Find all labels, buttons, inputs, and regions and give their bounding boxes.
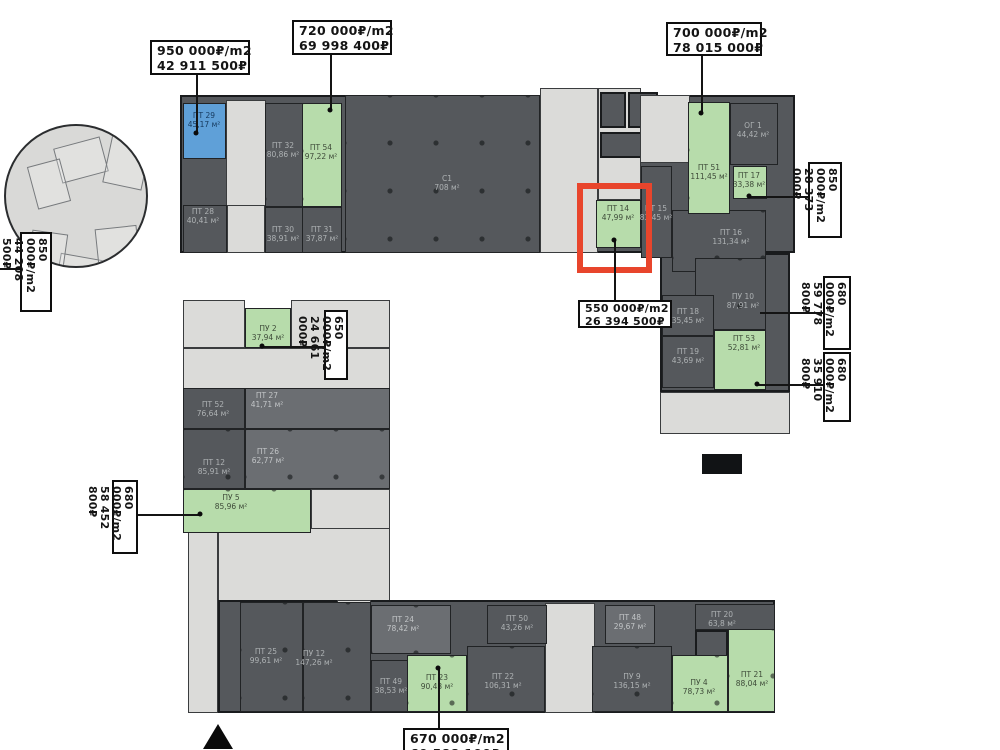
price-total: 24 661 000₽ [296,316,320,374]
floor-unit [371,605,451,654]
callout-connector [196,75,198,133]
price-total: 59 778 800₽ [799,282,823,344]
price-callout: 680 000₽/m235 910 800₽ [823,352,851,422]
floor-unit [605,605,655,644]
price-callout: 700 000₽/m278 015 000₽ [666,22,762,56]
floor-unit [240,602,303,712]
floor-unit [592,646,672,712]
building-structure [218,528,390,602]
floor-unit[interactable] [183,103,226,159]
price-per-m2: 850 000₽/m2 [814,168,838,232]
price-total: 35 910 800₽ [799,358,823,416]
callout-anchor-dot [747,194,752,199]
callout-anchor-dot [755,382,760,387]
floor-unit [730,103,778,165]
building-structure [545,603,595,713]
price-callout: 850 000₽/m244 208 500₽ [20,232,52,312]
price-total: 28 373 000₽ [790,168,814,232]
callout-connector [138,514,200,516]
price-per-m2: 700 000₽/m2 [673,25,755,40]
floor-unit [245,388,390,429]
floor-unit [467,646,545,712]
floor-unit[interactable] [302,103,342,207]
floor-unit [662,336,714,388]
floor-unit [265,103,303,207]
floor-unit [302,207,342,253]
price-callout: 680 000₽/m258 452 800₽ [112,480,138,554]
price-total: 78 015 000₽ [673,40,755,55]
price-callout: 850 000₽/m228 373 000₽ [808,162,842,238]
callout-anchor-dot [194,131,199,136]
price-total: 42 911 500₽ [157,58,243,73]
building-structure [183,348,390,390]
callout-connector [701,56,703,113]
price-total: 44 208 500₽ [0,238,24,306]
inset-room-shape [102,133,148,190]
price-per-m2: 850 000₽/m2 [24,238,48,306]
north-arrow-icon [203,724,233,749]
building-structure [660,392,790,434]
shaft-block [702,454,742,474]
price-total: 26 394 500₽ [585,316,665,329]
inset-room-shape [95,225,142,268]
price-total: 58 452 800₽ [86,486,110,548]
floor-unit [183,388,245,429]
floor-unit [183,429,245,489]
callout-anchor-dot [699,111,704,116]
floor-unit[interactable] [407,655,467,712]
price-per-m2: 950 000₽/m2 [157,43,243,58]
floor-unit [371,660,409,712]
callout-connector [330,55,332,110]
floor-unit [183,205,227,253]
price-total: 60 588 100₽ [410,746,502,750]
price-callout: 550 000₽/m226 394 500₽ [578,300,672,328]
building-structure [188,528,218,713]
building-structure [640,95,690,163]
price-callout: 670 000₽/m260 588 100₽ [403,728,509,750]
price-per-m2: 650 000₽/m2 [320,316,344,374]
floor-plan: ПТ 2945,17 м²ПТ 3280,86 м²ПТ 5497,22 м²П… [0,0,1000,750]
floor-unit[interactable] [183,489,311,533]
callout-anchor-dot [436,666,441,671]
floor-unit[interactable] [672,655,728,712]
price-per-m2: 550 000₽/m2 [585,303,665,316]
floor-unit [265,207,303,253]
floor-unit [245,429,390,489]
callout-connector [614,240,616,300]
building-structure [183,300,245,348]
price-per-m2: 720 000₽/m2 [299,23,385,38]
building-structure [227,205,265,253]
floor-unit [487,605,547,644]
price-callout: 650 000₽/m224 661 000₽ [324,310,348,380]
price-per-m2: 670 000₽/m2 [410,731,502,746]
price-total: 69 998 400₽ [299,38,385,53]
floor-unit[interactable] [245,308,291,348]
price-callout: 680 000₽/m259 778 800₽ [823,276,851,350]
callout-connector [438,668,440,728]
floor-unit[interactable] [688,102,730,214]
floor-unit[interactable] [728,628,775,712]
floor-unit [695,604,775,630]
price-callout: 720 000₽/m269 998 400₽ [292,20,392,55]
floor-unit [345,95,540,253]
price-callout: 950 000₽/m242 911 500₽ [150,40,250,75]
price-per-m2: 680 000₽/m2 [823,282,847,344]
building-structure [600,92,626,128]
callout-anchor-dot [260,344,265,349]
floor-unit [303,602,371,712]
price-per-m2: 680 000₽/m2 [823,358,847,416]
callout-anchor-dot [612,238,617,243]
callout-anchor-dot [198,512,203,517]
price-per-m2: 680 000₽/m2 [110,486,134,548]
callout-anchor-dot [328,108,333,113]
